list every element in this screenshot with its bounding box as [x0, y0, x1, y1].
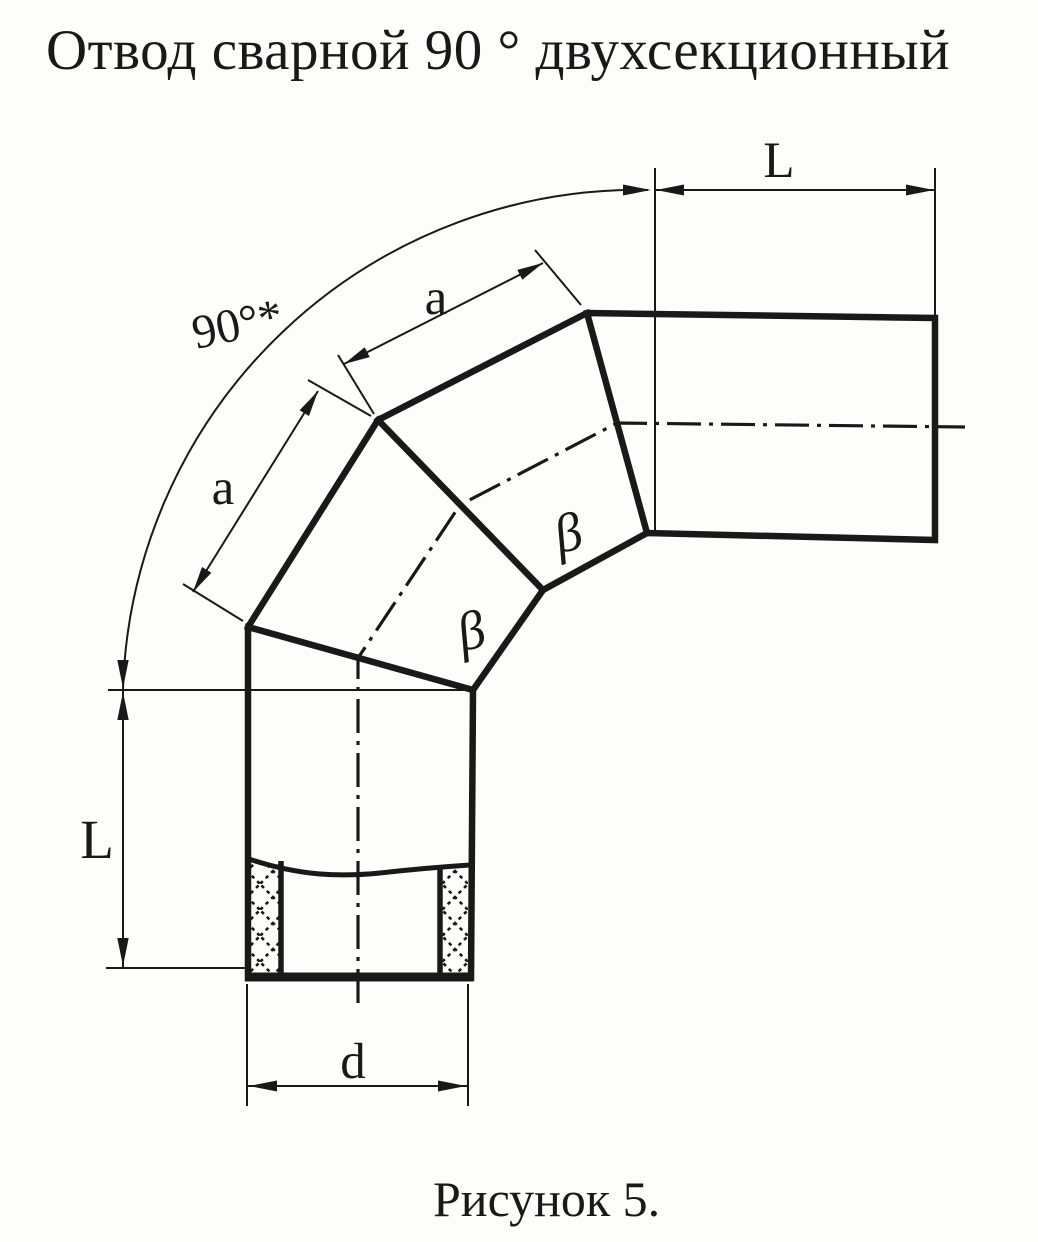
- technical-drawing-elbow: 90°* L L a a d β β: [0, 0, 1038, 1242]
- arrowhead-lower-a-upper: [300, 391, 318, 416]
- diameter-dimension-label: d: [340, 1034, 366, 1090]
- weld-joint-line-middle: [378, 420, 543, 590]
- extension-line-lower-a-from-mid-joint: [308, 380, 371, 416]
- weld-joint-line-bottom: [248, 627, 473, 690]
- arrowhead-arc-bottom: [117, 660, 128, 688]
- arrowhead-lower-a-lower: [193, 567, 211, 592]
- upper-segment-width-label: a: [425, 270, 448, 326]
- socket-hatch-right: [441, 866, 468, 975]
- arrowhead-d-right: [438, 1081, 466, 1092]
- arrowhead-d-left: [249, 1081, 277, 1092]
- upper-segment-angle-symbol: β: [546, 500, 589, 565]
- elbow-outline: [248, 313, 935, 978]
- lower-segment-angle-symbol: β: [449, 598, 492, 663]
- arrowhead-left-L-top: [117, 692, 128, 720]
- extension-line-upper-a-from-top-joint: [535, 250, 581, 305]
- scanned-drawing-page: Отвод сварной 90 ° двухсекционный: [0, 0, 1038, 1242]
- arrowhead-left-L-bottom: [117, 938, 128, 966]
- arrowhead-top-L-left: [656, 185, 684, 196]
- arrowhead-upper-a-upper: [517, 263, 543, 280]
- arrowhead-top-L-right: [906, 185, 934, 196]
- page-title: Отвод сварной 90 ° двухсекционный: [46, 20, 950, 83]
- figure-caption: Рисунок 5.: [433, 1172, 660, 1227]
- left-length-dimension-label: L: [80, 809, 114, 870]
- extension-line-upper-a-from-mid-joint: [338, 355, 374, 414]
- arrowhead-arc-top: [623, 185, 651, 196]
- extension-line-lower-a-from-bottom-joint: [183, 584, 243, 621]
- elbow-contour: [248, 313, 935, 978]
- socket-hatch-left: [251, 861, 279, 975]
- lower-segment-width-label: a: [212, 460, 235, 516]
- angle-dimension-label: 90°*: [187, 289, 287, 360]
- arrowhead-upper-a-lower: [344, 347, 370, 364]
- top-length-dimension-label: L: [763, 133, 794, 189]
